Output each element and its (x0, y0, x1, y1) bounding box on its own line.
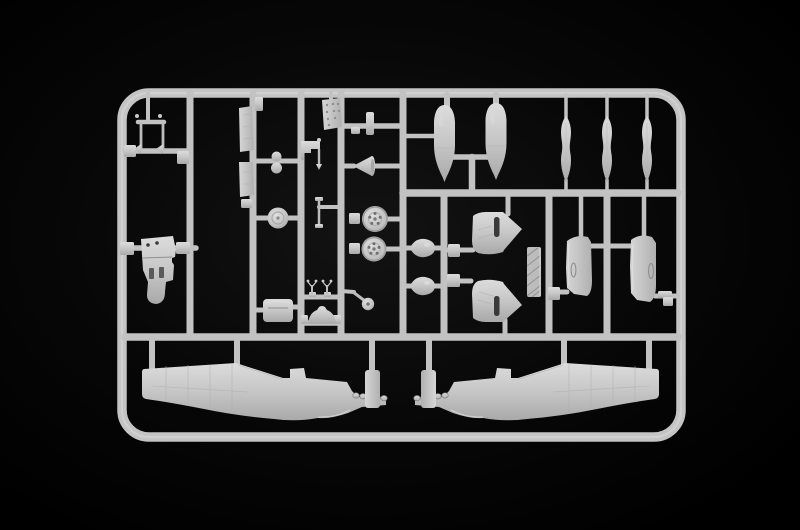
sprue-photo (0, 0, 800, 530)
hub-disc (268, 208, 289, 229)
sprue-svg (0, 0, 800, 530)
radiator-core (527, 247, 541, 297)
tailwheel-arm (341, 291, 354, 292)
cowling-half-2 (630, 236, 656, 302)
instrument-panel (322, 98, 342, 130)
equipment-box (263, 299, 293, 322)
